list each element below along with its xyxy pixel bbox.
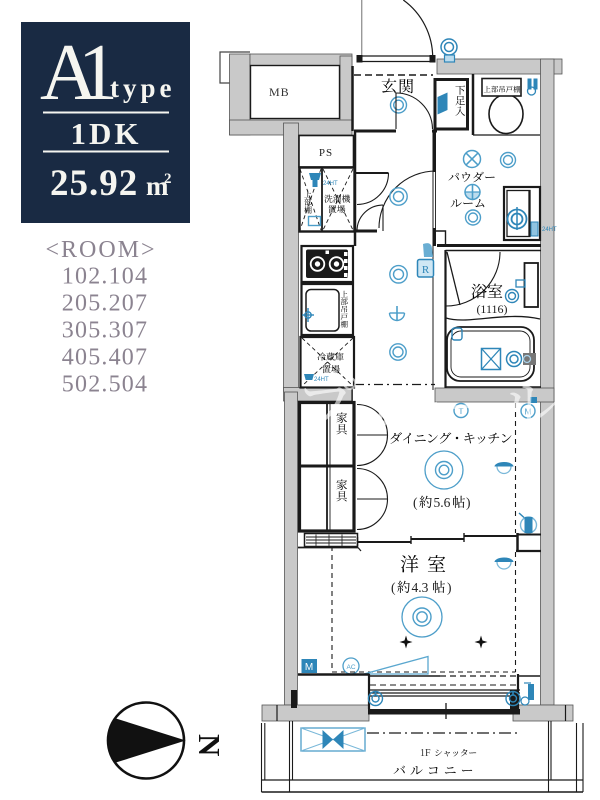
svg-text:): ) (466, 495, 471, 510)
svg-text:1DK: 1DK (71, 116, 142, 151)
svg-text:24HT: 24HT (542, 227, 557, 233)
svg-text:24HT: 24HT (314, 377, 329, 383)
svg-text:PS: PS (319, 147, 333, 159)
svg-text:305.307: 305.307 (62, 318, 148, 344)
svg-text:(: ( (413, 495, 418, 510)
svg-text:2: 2 (164, 171, 172, 187)
svg-text:(: ( (391, 580, 396, 595)
svg-text:): ) (447, 580, 452, 595)
svg-text:405.407: 405.407 (62, 345, 148, 371)
svg-text:25.92: 25.92 (50, 163, 138, 204)
svg-text:M: M (305, 662, 313, 673)
svg-text:102.104: 102.104 (62, 264, 148, 290)
svg-text:4.3: 4.3 (412, 580, 429, 595)
svg-text:1F: 1F (420, 748, 431, 759)
svg-text:R: R (422, 264, 430, 276)
svg-text:type: type (110, 73, 176, 103)
svg-text:<ROOM>: <ROOM> (45, 237, 156, 263)
svg-text:5.6: 5.6 (434, 495, 451, 510)
svg-text:502.504: 502.504 (62, 372, 148, 398)
svg-text:AC: AC (346, 664, 355, 671)
svg-text:205.207: 205.207 (62, 291, 148, 317)
svg-text:(1116): (1116) (476, 302, 507, 316)
svg-text:N: N (192, 734, 227, 756)
svg-text:24HT: 24HT (323, 181, 338, 187)
svg-text:MB: MB (269, 85, 290, 99)
